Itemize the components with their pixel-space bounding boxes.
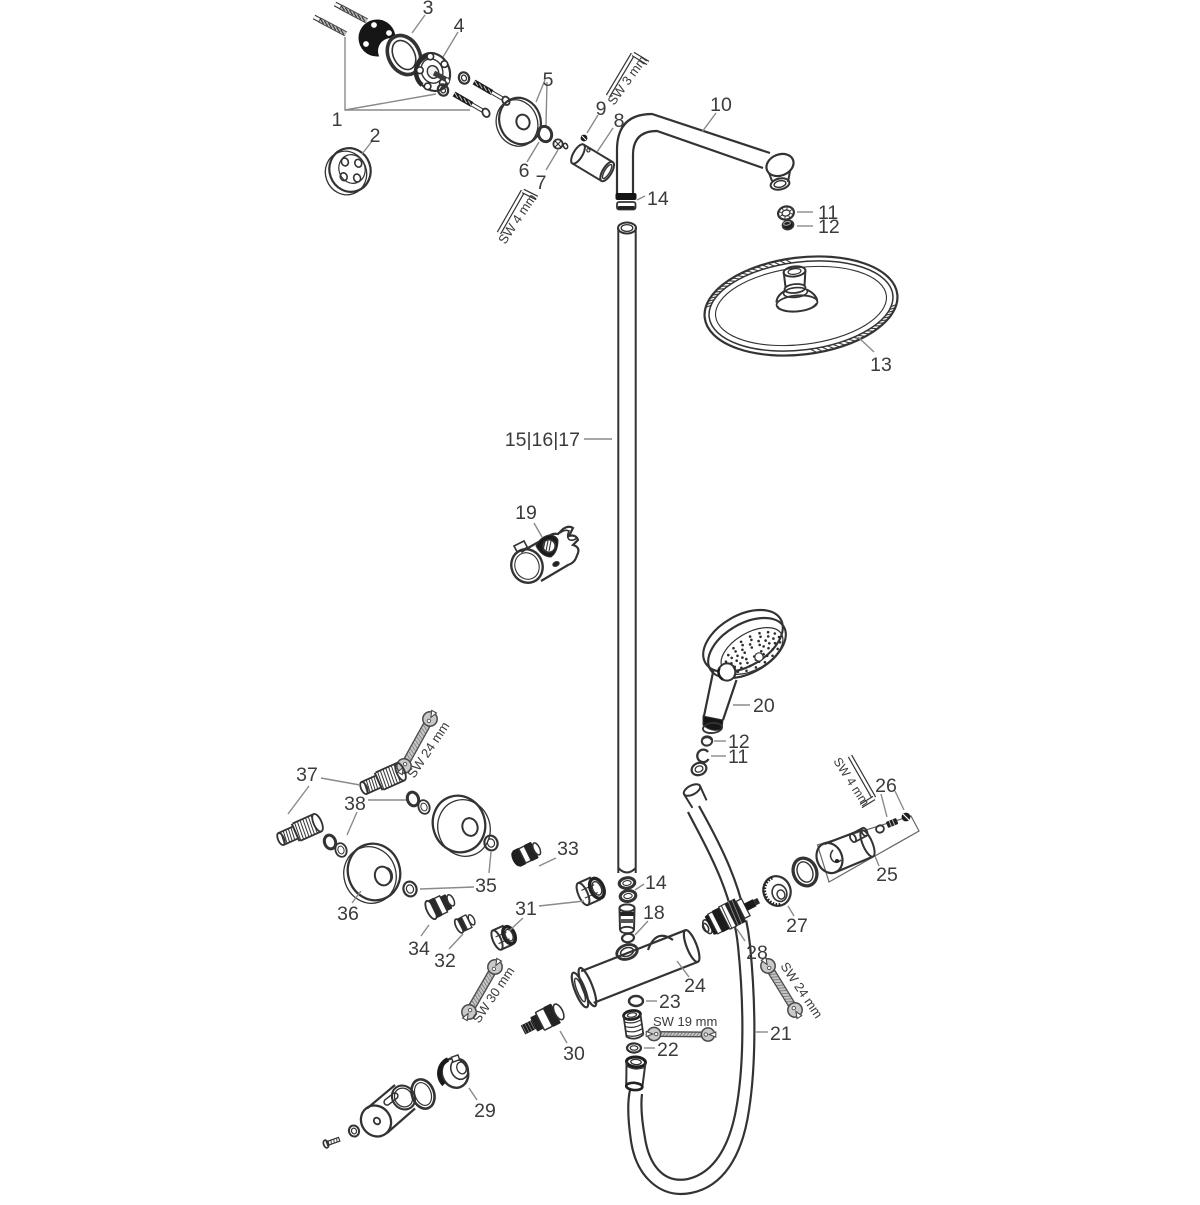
svg-text:20: 20 [753,695,775,717]
svg-text:36: 36 [337,903,359,925]
svg-text:24: 24 [684,975,706,997]
svg-text:25: 25 [876,864,898,886]
svg-text:30: 30 [563,1043,585,1065]
svg-text:22: 22 [657,1039,679,1061]
svg-text:33: 33 [557,838,579,860]
svg-text:18: 18 [643,902,665,924]
svg-text:SW 19 mm: SW 19 mm [653,1014,717,1029]
svg-text:21: 21 [770,1023,792,1045]
svg-text:14: 14 [647,188,669,210]
svg-text:5: 5 [543,69,554,91]
svg-text:19: 19 [515,502,537,524]
svg-text:23: 23 [659,991,681,1013]
svg-text:37: 37 [296,764,318,786]
svg-text:11: 11 [728,746,748,768]
svg-text:7: 7 [536,172,547,194]
svg-text:4: 4 [454,15,465,37]
svg-text:9: 9 [596,98,607,120]
svg-text:10: 10 [710,94,732,116]
svg-text:38: 38 [344,793,366,815]
svg-text:3: 3 [423,0,434,19]
svg-text:31: 31 [515,898,537,920]
svg-text:13: 13 [870,354,892,376]
svg-text:35: 35 [475,875,497,897]
svg-text:1: 1 [332,109,343,131]
svg-text:14: 14 [645,872,667,894]
svg-text:34: 34 [408,938,430,960]
svg-text:29: 29 [474,1100,496,1122]
svg-text:27: 27 [786,915,808,937]
svg-text:8: 8 [614,110,625,132]
svg-text:2: 2 [370,125,381,147]
svg-text:15|16|17: 15|16|17 [505,429,580,451]
svg-text:26: 26 [875,775,897,797]
svg-text:6: 6 [519,160,530,182]
svg-text:12: 12 [818,216,840,238]
svg-text:32: 32 [434,950,456,972]
